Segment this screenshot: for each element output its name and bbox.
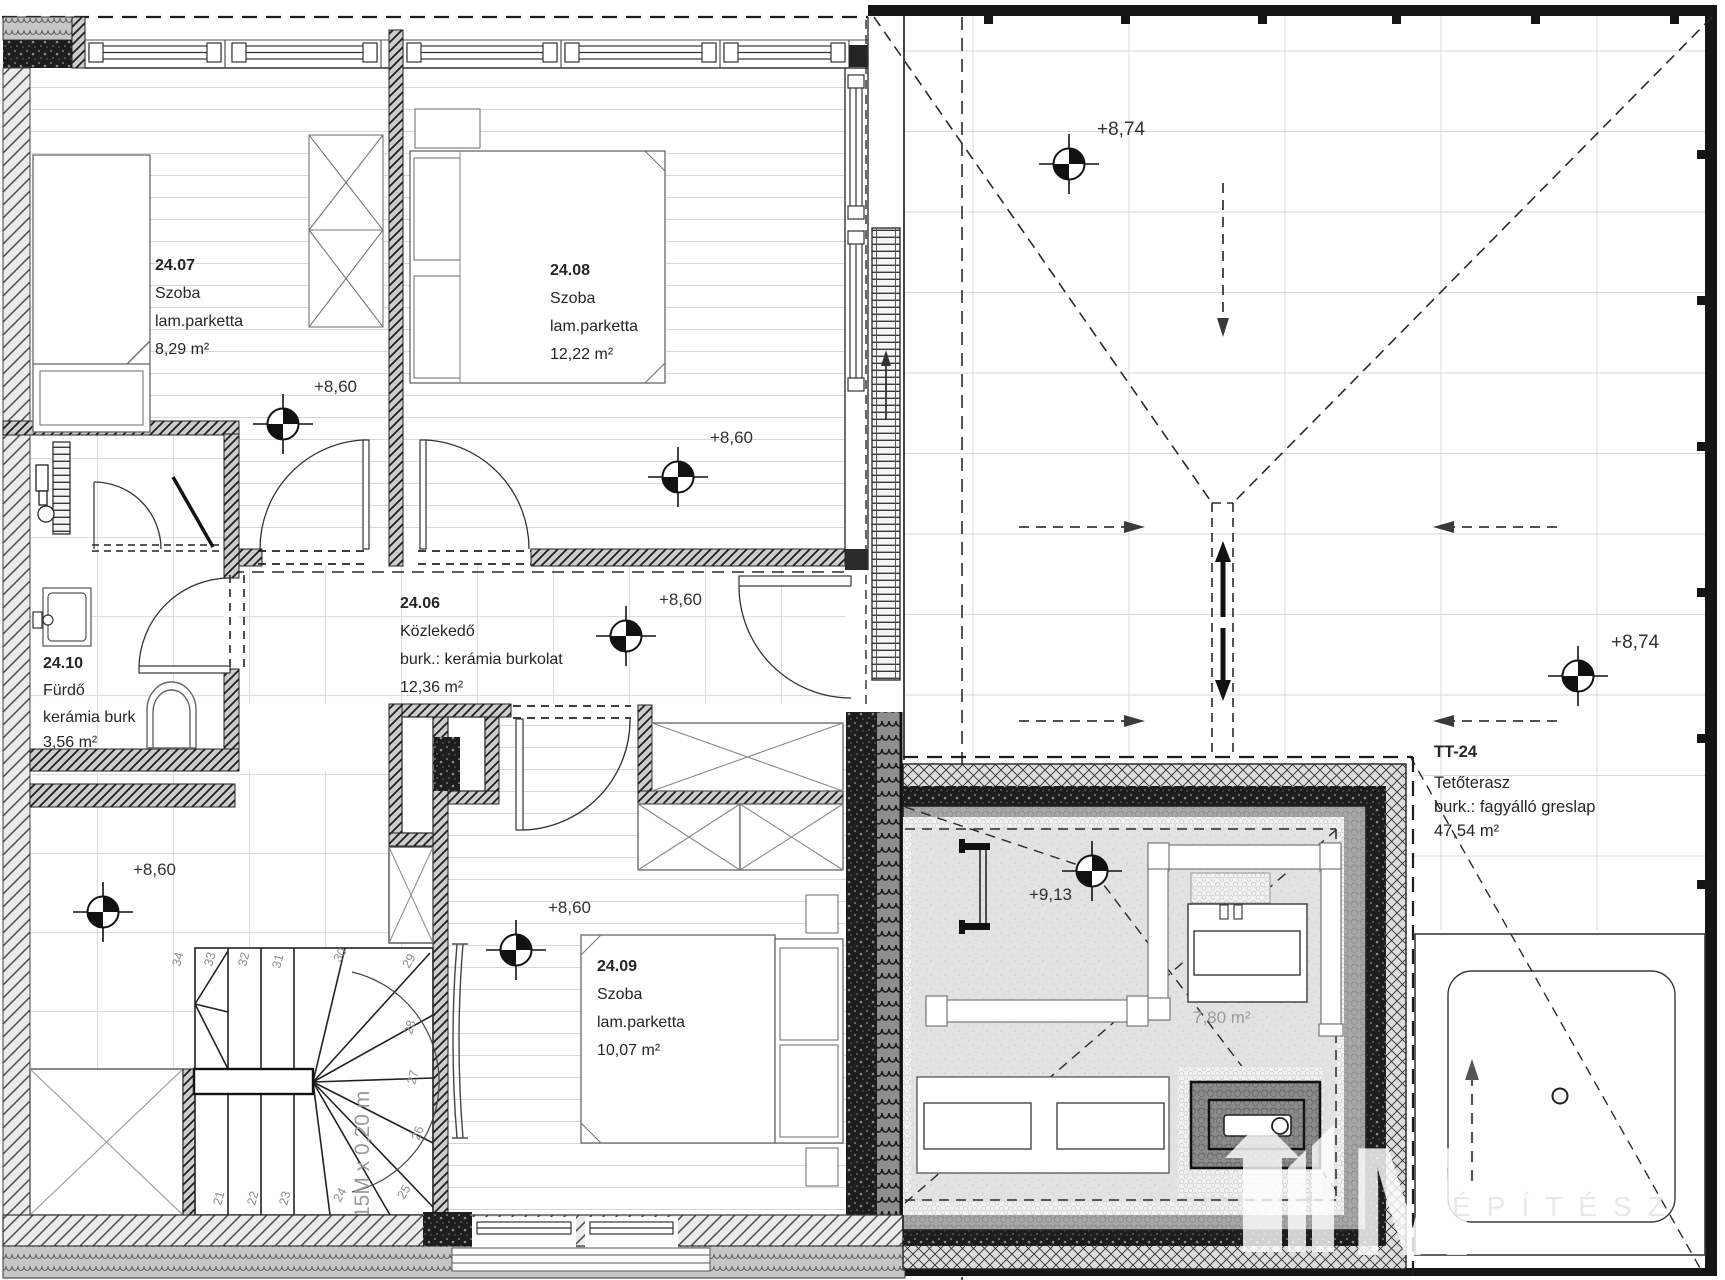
svg-text:12,22 m²: 12,22 m² bbox=[550, 346, 614, 363]
svg-text:lam.parketta: lam.parketta bbox=[155, 313, 243, 330]
svg-text:Fürdő: Fürdő bbox=[43, 682, 85, 699]
svg-text:8,29 m²: 8,29 m² bbox=[155, 341, 210, 358]
svg-text:10,07 m²: 10,07 m² bbox=[597, 1042, 661, 1059]
svg-text:burk.: kerámia burkolat: burk.: kerámia burkolat bbox=[400, 651, 563, 668]
svg-text:24.07: 24.07 bbox=[155, 257, 195, 274]
svg-text:+8,74: +8,74 bbox=[1611, 632, 1660, 653]
svg-text:15M x 0,20 m: 15M x 0,20 m bbox=[351, 1091, 374, 1218]
svg-text:TT-24: TT-24 bbox=[1434, 743, 1478, 761]
svg-text:lam.parketta: lam.parketta bbox=[550, 318, 638, 335]
svg-text:Tetőterasz: Tetőterasz bbox=[1434, 774, 1510, 792]
svg-text:+9,13: +9,13 bbox=[1029, 885, 1072, 904]
svg-text:7,80 m²: 7,80 m² bbox=[1193, 1008, 1251, 1027]
svg-text:24.08: 24.08 bbox=[550, 262, 590, 279]
svg-text:Szoba: Szoba bbox=[597, 986, 642, 1003]
svg-text:lam.parketta: lam.parketta bbox=[597, 1014, 685, 1031]
svg-text:3,56 m²: 3,56 m² bbox=[43, 734, 98, 751]
svg-text:Szoba: Szoba bbox=[550, 290, 595, 307]
svg-text:Közlekedő: Közlekedő bbox=[400, 623, 475, 640]
svg-text:Szoba: Szoba bbox=[155, 285, 200, 302]
svg-text:+8,60: +8,60 bbox=[133, 860, 176, 879]
svg-text:+8,60: +8,60 bbox=[659, 590, 702, 609]
svg-text:+8,60: +8,60 bbox=[548, 898, 591, 917]
svg-text:kerámia burk: kerámia burk bbox=[43, 709, 136, 726]
svg-text:+8,60: +8,60 bbox=[710, 428, 753, 447]
svg-text:+8,60: +8,60 bbox=[314, 377, 357, 396]
svg-text:burk.: fagyálló greslap: burk.: fagyálló greslap bbox=[1434, 798, 1595, 816]
svg-text:24.10: 24.10 bbox=[43, 655, 83, 672]
svg-text:ÉPÍTÉSZ: ÉPÍTÉSZ bbox=[1452, 1191, 1681, 1222]
svg-text:12,36 m²: 12,36 m² bbox=[400, 679, 464, 696]
svg-text:47,54 m²: 47,54 m² bbox=[1434, 822, 1500, 840]
svg-text:24.06: 24.06 bbox=[400, 595, 440, 612]
svg-text:24.09: 24.09 bbox=[597, 958, 637, 975]
svg-text:+8,74: +8,74 bbox=[1097, 119, 1146, 140]
